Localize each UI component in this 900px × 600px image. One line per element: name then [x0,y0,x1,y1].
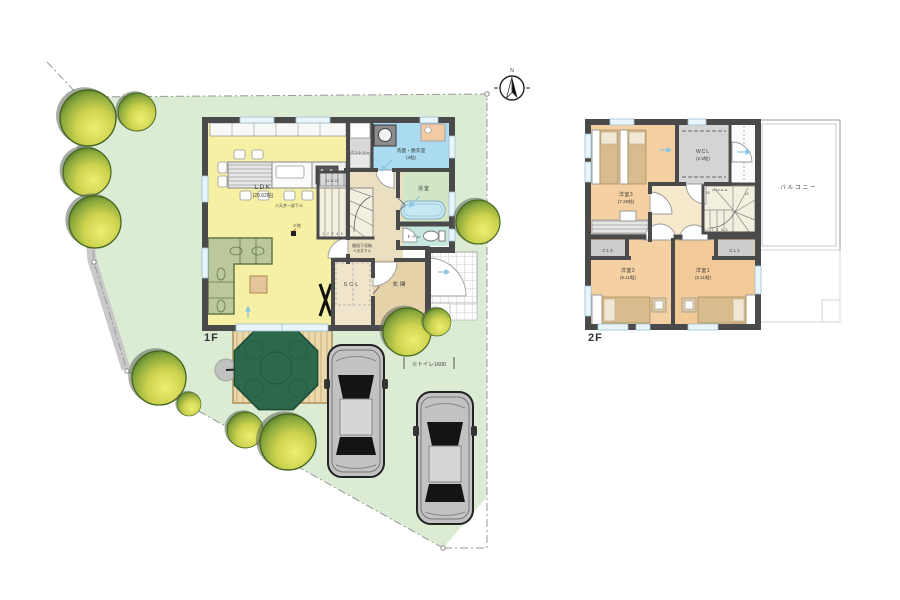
floor2-label: 2F [588,332,603,344]
porch-step [450,303,477,320]
toilet-icon [424,231,446,241]
toilet-dimension-label: ※トイレ1600 [412,361,446,368]
wcl-label: WCL [696,149,710,155]
stairs1f-upper-numbers: 11 12 13 [326,179,338,183]
floor-plan-image: 11 12 13 1 2 3 4 5 [0,0,900,600]
bedroom1-size: (5.11帖) [695,274,711,281]
stairs2f-top: 14 13 12 11 [712,188,728,192]
bedroom3-label: 洋室3 [619,191,633,198]
stair-storage-note: 階段下収納 [352,242,372,248]
bedroom2-label: 洋室2 [621,267,635,274]
closet1-label: CL1 [729,248,740,253]
scl-label: SCL [344,282,361,288]
stairs2f-topleft: 15 [706,191,710,195]
stairs-2f: 15 14 13 12 11 10 1 2 3 4 5 [703,186,755,233]
pantry-shelf-bottom [350,154,370,168]
entrance-label: 玄関 [392,280,407,288]
kitchen-sink [276,166,304,178]
floor2-plan: バルコニー [585,119,840,344]
pillar-note: ※柱 [293,222,302,229]
stairs2f-lower: 1 2 3 4 5 [707,228,728,232]
closet2-label: CL2 [602,248,613,253]
dresser [592,220,648,234]
stair-ceiling-note: ※天井下ル [353,248,371,253]
ldk-label: LDK [254,184,271,191]
car-1 [324,345,388,477]
car-2 [413,392,477,524]
pantry-shelf-top [350,123,370,138]
floor-plan-canvas: 11 12 13 1 2 3 4 5 [0,0,900,600]
toilet-label: トイレ [407,234,422,239]
floor1-label: 1F [204,332,219,344]
ldk-size: (20.62帖) [253,192,274,199]
bedroom2-size: (5.11帖) [620,274,636,281]
ceiling-note: ※天井一部下ル [275,202,303,208]
washroom-size: (3帖) [406,154,417,161]
washbasin-icon [421,124,445,141]
bedroom3-size: (7.25帖) [618,198,635,205]
wcl-size: (2.5帖) [696,155,710,162]
bedroom1-label: 洋室1 [696,267,710,274]
washroom-label: 洗面・脱衣室 [397,147,426,154]
balcony: バルコニー [758,120,840,322]
compass-north-label: N [510,68,514,74]
compass: N [494,68,530,100]
pantry-label: パントリー [350,150,370,155]
balcony-label: バルコニー [780,184,817,191]
coffee-table [250,276,267,293]
parasol-icon [234,326,317,409]
kitchen-cabinets [210,123,346,136]
stairs1f-lower-numbers: 1 2 3 4 5 [322,232,343,236]
bath-label: 浴室 [418,185,430,192]
stairs2f-topright: 10 [745,192,749,196]
